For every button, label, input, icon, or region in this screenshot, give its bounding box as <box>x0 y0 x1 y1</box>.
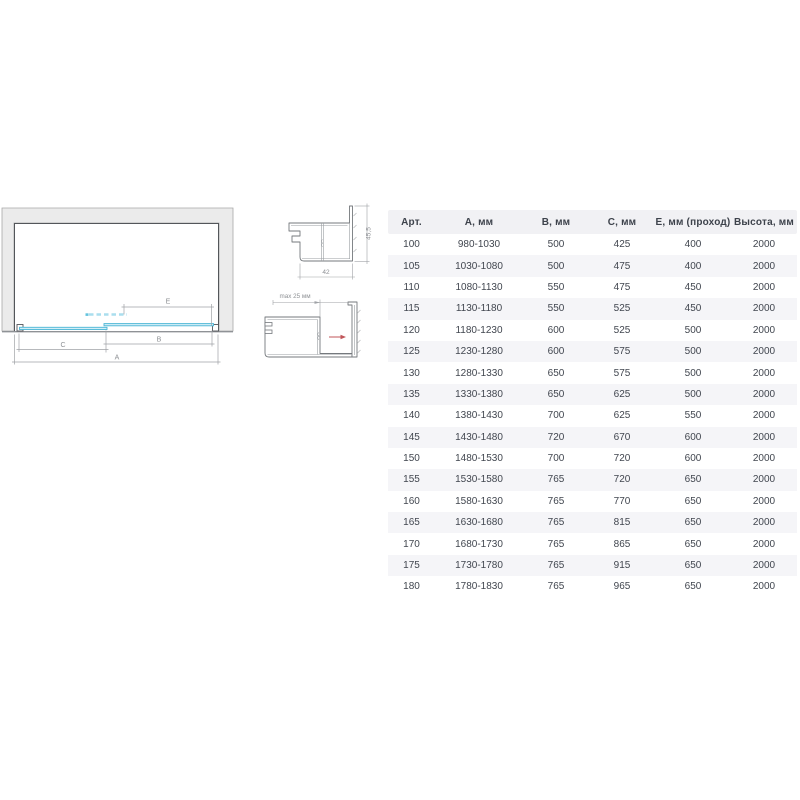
table-cell: 2000 <box>731 517 797 528</box>
dimension-max <box>273 300 348 318</box>
table-cell: 1030-1080 <box>435 261 523 272</box>
table-cell: 1180-1230 <box>435 325 523 336</box>
table-cell: 600 <box>523 325 589 336</box>
wall-hatch-marks <box>358 310 361 353</box>
table-row: 1601580-16307657706502000 <box>388 491 797 512</box>
table-cell: 525 <box>589 303 655 314</box>
table-cell: 600 <box>523 346 589 357</box>
table-cell: 650 <box>655 539 731 550</box>
table-cell: 1330-1380 <box>435 389 523 400</box>
adjustment-arrow-icon <box>329 335 346 339</box>
table-row: 1551530-15807657206502000 <box>388 469 797 490</box>
table-cell: 765 <box>523 539 589 550</box>
table-cell: 525 <box>589 325 655 336</box>
profile-tooth-lower <box>265 330 272 334</box>
fixed-glass-panel <box>20 327 108 329</box>
table-row: 1101080-11305504754502000 <box>388 277 797 298</box>
table-cell: 1480-1530 <box>435 453 523 464</box>
table-cell: 720 <box>589 453 655 464</box>
table-cell: 1630-1680 <box>435 517 523 528</box>
table-cell: 600 <box>655 432 731 443</box>
column-header-height: Высота, мм <box>731 217 797 228</box>
table-cell: 765 <box>523 496 589 507</box>
table-cell: 475 <box>589 261 655 272</box>
table-cell: 2000 <box>731 368 797 379</box>
table-cell: 2000 <box>731 239 797 250</box>
dimension-max-arrowhead <box>315 301 321 304</box>
column-header-art: Арт. <box>388 217 435 228</box>
table-cell: 2000 <box>731 282 797 293</box>
table-cell: 500 <box>655 368 731 379</box>
table-cell: 1380-1430 <box>435 410 523 421</box>
table-cell: 650 <box>655 517 731 528</box>
profile-outline <box>289 206 353 261</box>
table-row: 1051030-10805004754002000 <box>388 255 797 276</box>
table-cell: 765 <box>523 474 589 485</box>
table-cell: 765 <box>523 517 589 528</box>
table-cell: 1430-1480 <box>435 432 523 443</box>
table-body: 100980-103050042540020001051030-10805004… <box>388 234 797 598</box>
table-cell: 500 <box>655 346 731 357</box>
door-travel-start-mark <box>86 313 89 316</box>
table-cell: 765 <box>523 560 589 571</box>
table-cell: 2000 <box>731 581 797 592</box>
table-cell: 2000 <box>731 496 797 507</box>
table-cell: 475 <box>589 282 655 293</box>
table-cell: 120 <box>388 325 435 336</box>
table-row: 1801780-18307659656502000 <box>388 576 797 597</box>
table-cell: 700 <box>523 453 589 464</box>
table-cell: 980-1030 <box>435 239 523 250</box>
table-cell: 575 <box>589 346 655 357</box>
column-header-b: В, мм <box>523 217 589 228</box>
table-cell: 170 <box>388 539 435 550</box>
table-cell: 115 <box>388 303 435 314</box>
table-cell: 700 <box>523 410 589 421</box>
table-row: 1751730-17807659156502000 <box>388 555 797 576</box>
table-cell: 720 <box>523 432 589 443</box>
table-cell: 500 <box>523 239 589 250</box>
table-cell: 650 <box>523 389 589 400</box>
table-cell: 2000 <box>731 474 797 485</box>
table-cell: 2000 <box>731 261 797 272</box>
table-cell: 2000 <box>731 389 797 400</box>
table-cell: 1230-1280 <box>435 346 523 357</box>
column-header-e: Е, мм (проход) <box>655 217 731 228</box>
table-cell: 915 <box>589 560 655 571</box>
table-cell: 130 <box>388 368 435 379</box>
table-cell: 140 <box>388 410 435 421</box>
table-cell: 2000 <box>731 432 797 443</box>
wall-profile-outline <box>348 302 357 357</box>
table-cell: 145 <box>388 432 435 443</box>
dimension-label-e: E <box>166 299 171 306</box>
table-cell: 670 <box>589 432 655 443</box>
profile-max-label: max 25 мм <box>279 293 310 300</box>
table-cell: 135 <box>388 389 435 400</box>
table-row: 1151130-11805505254502000 <box>388 298 797 319</box>
dimension-label-b: B <box>157 337 162 344</box>
table-cell: 160 <box>388 496 435 507</box>
wall-hatch-marks <box>354 213 357 252</box>
table-cell: 500 <box>655 325 731 336</box>
table-cell: 1780-1830 <box>435 581 523 592</box>
table-cell: 865 <box>589 539 655 550</box>
table-cell: 400 <box>655 239 731 250</box>
table-row: 100980-10305004254002000 <box>388 234 797 255</box>
table-cell: 1280-1330 <box>435 368 523 379</box>
table-cell: 650 <box>655 474 731 485</box>
table-row: 1351330-13806506255002000 <box>388 384 797 405</box>
spec-table: Арт. А, мм В, мм С, мм Е, мм (проход) Вы… <box>388 210 797 598</box>
table-row: 1251230-12806005755002000 <box>388 341 797 362</box>
table-row: 1301280-13306505755002000 <box>388 362 797 383</box>
table-cell: 815 <box>589 517 655 528</box>
table-cell: 100 <box>388 239 435 250</box>
table-cell: 175 <box>388 560 435 571</box>
table-cell: 2000 <box>731 539 797 550</box>
dimension-label-c: C <box>60 342 65 349</box>
table-cell: 400 <box>655 261 731 272</box>
table-cell: 150 <box>388 453 435 464</box>
table-cell: 550 <box>523 282 589 293</box>
table-cell: 125 <box>388 346 435 357</box>
table-cell: 2000 <box>731 325 797 336</box>
profile-cross-section-adjustment: max 25 мм <box>253 285 383 375</box>
table-cell: 450 <box>655 282 731 293</box>
table-cell: 650 <box>655 496 731 507</box>
profile-tooth-upper <box>265 323 272 327</box>
table-cell: 550 <box>523 303 589 314</box>
table-cell: 2000 <box>731 346 797 357</box>
table-cell: 2000 <box>731 453 797 464</box>
table-cell: 2000 <box>731 560 797 571</box>
table-row: 1651630-16807658156502000 <box>388 512 797 533</box>
table-cell: 1530-1580 <box>435 474 523 485</box>
table-cell: 2000 <box>731 303 797 314</box>
table-cell: 550 <box>655 410 731 421</box>
table-cell: 1580-1630 <box>435 496 523 507</box>
table-cell: 625 <box>589 410 655 421</box>
table-cell: 770 <box>589 496 655 507</box>
table-cell: 650 <box>523 368 589 379</box>
table-cell: 965 <box>589 581 655 592</box>
table-cell: 155 <box>388 474 435 485</box>
column-header-a: А, мм <box>435 217 523 228</box>
column-header-c: С, мм <box>589 217 655 228</box>
table-cell: 650 <box>655 581 731 592</box>
table-header-row: Арт. А, мм В, мм С, мм Е, мм (проход) Вы… <box>388 210 797 234</box>
table-row: 1701680-17307658656502000 <box>388 533 797 554</box>
table-cell: 500 <box>523 261 589 272</box>
table-row: 1451430-14807206706002000 <box>388 427 797 448</box>
table-cell: 2000 <box>731 410 797 421</box>
table-row: 1401380-14307006255502000 <box>388 405 797 426</box>
table-cell: 500 <box>655 389 731 400</box>
profile-width-label: 42 <box>322 269 330 276</box>
sliding-glass-panel <box>104 324 214 326</box>
table-cell: 180 <box>388 581 435 592</box>
table-cell: 625 <box>589 389 655 400</box>
profile-cross-section-top: 42 45,5 <box>256 198 378 282</box>
table-cell: 720 <box>589 474 655 485</box>
table-cell: 1730-1780 <box>435 560 523 571</box>
table-cell: 1130-1180 <box>435 303 523 314</box>
table-cell: 105 <box>388 261 435 272</box>
table-row: 1201180-12306005255002000 <box>388 320 797 341</box>
table-cell: 600 <box>655 453 731 464</box>
dimension-label-a: A <box>115 355 120 362</box>
table-row: 1501480-15307007206002000 <box>388 448 797 469</box>
table-cell: 1680-1730 <box>435 539 523 550</box>
profile-height-label: 45,5 <box>366 227 373 240</box>
table-cell: 425 <box>589 239 655 250</box>
shower-frame <box>15 224 219 332</box>
table-cell: 110 <box>388 282 435 293</box>
table-cell: 450 <box>655 303 731 314</box>
table-cell: 650 <box>655 560 731 571</box>
installation-drawing: E B C A <box>0 195 240 380</box>
table-cell: 575 <box>589 368 655 379</box>
table-cell: 1080-1130 <box>435 282 523 293</box>
table-cell: 165 <box>388 517 435 528</box>
table-cell: 765 <box>523 581 589 592</box>
